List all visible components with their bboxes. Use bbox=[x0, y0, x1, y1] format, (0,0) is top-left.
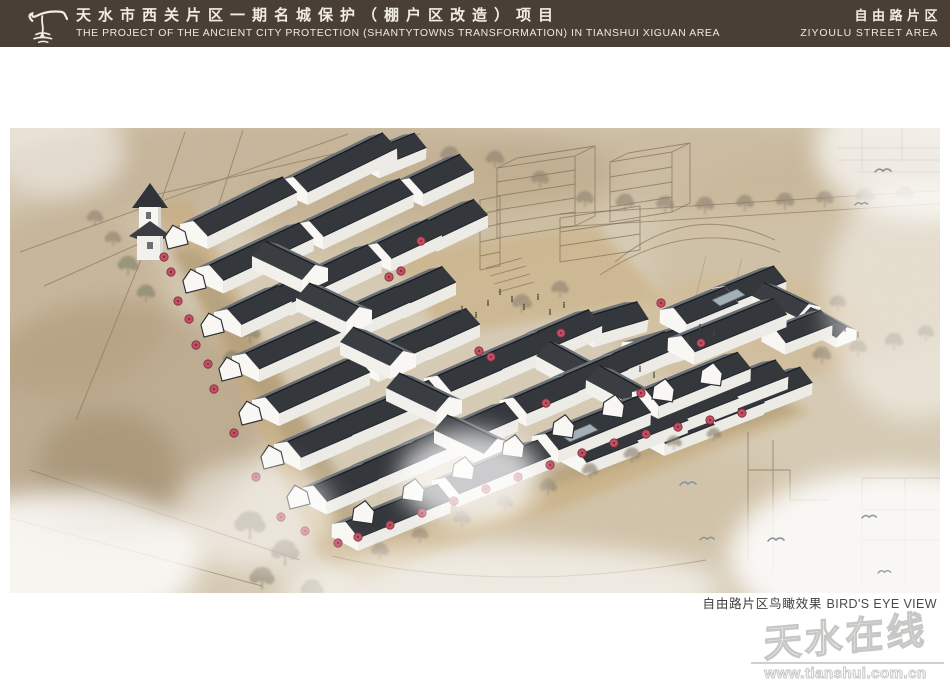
project-title-zh: 天水市西关片区一期名城保护（棚户区改造）项目 bbox=[76, 8, 720, 23]
project-titles: 天水市西关片区一期名城保护（棚户区改造）项目 THE PROJECT OF TH… bbox=[76, 8, 720, 39]
area-label: 自由路片区 ZIYOULU STREET AREA bbox=[800, 0, 938, 47]
area-label-zh: 自由路片区 bbox=[854, 9, 942, 22]
watermark-url: www.tianshui.com.cn bbox=[743, 665, 948, 682]
birds-eye-rendering bbox=[10, 128, 940, 593]
caption-zh: 自由路片区鸟瞰效果 bbox=[703, 597, 823, 611]
area-label-en: ZIYOULU STREET AREA bbox=[800, 28, 938, 39]
project-title-en: THE PROJECT OF THE ANCIENT CITY PROTECTI… bbox=[76, 28, 720, 39]
pavilion-logo-icon bbox=[24, 3, 68, 45]
caption-en: BIRD'S EYE VIEW bbox=[827, 597, 938, 611]
header-bar: 天水市西关片区一期名城保护（棚户区改造）项目 THE PROJECT OF TH… bbox=[0, 0, 950, 47]
image-caption: 自由路片区鸟瞰效果 BIRD'S EYE VIEW bbox=[703, 593, 937, 612]
watermark-divider bbox=[751, 662, 944, 664]
